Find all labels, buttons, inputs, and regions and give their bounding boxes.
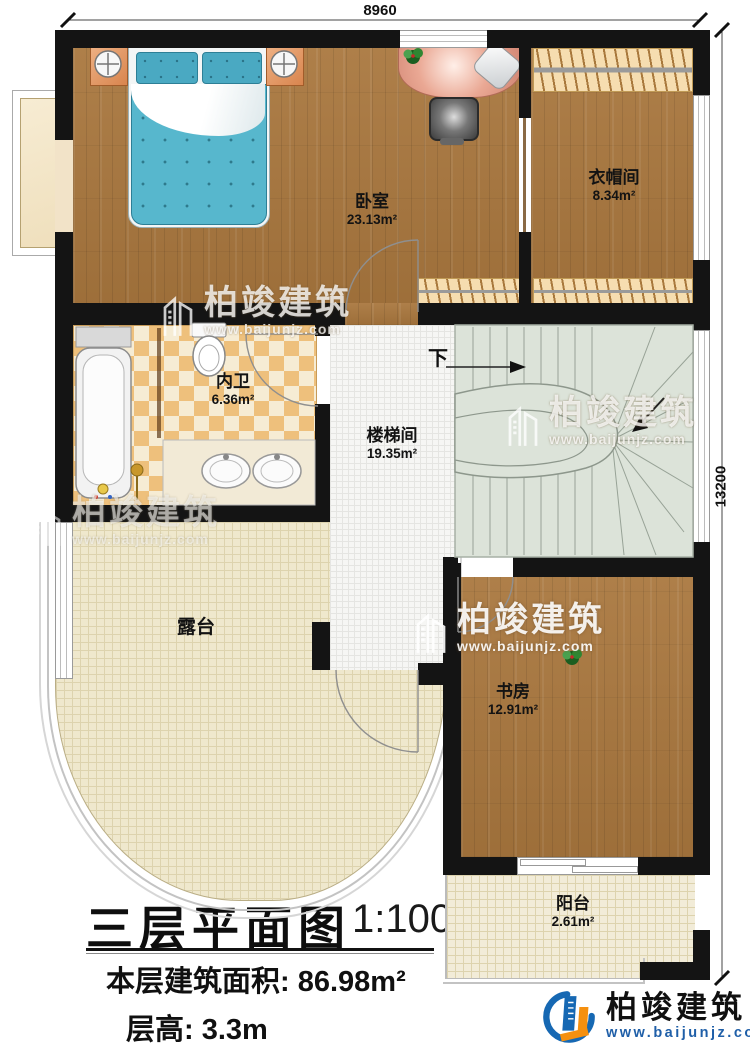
room-name: 衣帽间 [589,168,640,188]
floor-area-value: 86.98m² [298,966,406,998]
label-bedroom: 卧室 23.13m² [347,192,397,228]
wall-bath-right-bottom [315,404,330,505]
bedroom-computer-stand [440,138,464,145]
room-name: 卧室 [347,192,397,212]
wall-study-bottom-left [461,857,517,875]
wall-cloak-stub-bottom [519,232,531,303]
wall-right-stair-bottom [693,542,710,577]
brand-name: 柏竣建筑 [606,992,750,1024]
wall-bath-bottom [55,505,330,522]
floor-area-label: 本层建筑面积: [106,966,290,998]
wall-bath-right-top [315,325,330,336]
dimension-right: 13200 [713,452,730,522]
label-terrace: 露台 [177,618,215,638]
balcony-railing [443,958,645,984]
plan-scale: 1:100 [352,897,452,942]
cloakroom-wardrobe-top [533,48,693,92]
label-study: 书房 12.91m² [488,682,538,718]
cloakroom-right-window [693,95,710,262]
room-area: 8.34m² [589,188,640,204]
stair-down-label: 下 [428,342,448,371]
bed-pillow-right [202,52,262,84]
wall-study-bottom-right [638,857,710,875]
watermark-2: 柏竣建筑www.baijunjz.com [503,396,697,448]
label-balcony: 阳台 2.61m² [552,894,595,930]
room-name: 楼梯间 [367,426,418,446]
wall-left-top [55,48,73,140]
sliding-window-panel-2 [572,866,638,873]
room-area: 23.13m² [347,212,397,228]
wall-cloak-stub-top [519,48,531,118]
title-underline-shadow [86,953,434,954]
room-area: 2.61m² [552,914,595,930]
room-name: 书房 [488,682,538,702]
wall-mid-horizontal-right [418,303,710,325]
bathroom-floor [73,325,317,507]
wall-top-left [55,30,400,48]
room-name: 阳台 [552,894,595,914]
bay-window-floor-inner [55,140,73,232]
label-cloakroom: 衣帽间 8.34m² [589,168,640,204]
watermark-building-icon [503,396,543,448]
wall-study-left [443,563,461,875]
nightstand-right [266,44,304,86]
bed-pillow-left [136,52,198,84]
wall-stair-bottom-right [513,557,693,577]
room-area: 6.36m² [212,392,255,408]
bedroom-closet [418,278,520,305]
bedroom-computer [429,97,479,141]
floor-height-line: 层高: 3.3m [126,1006,268,1048]
wall-study-right [693,577,710,857]
brand-url: www.baijunjz.com [606,1024,750,1042]
dimension-top: 8960 [340,2,420,19]
wall-top-right [487,30,710,48]
cloakroom-wardrobe-bottom [533,278,693,305]
floor-height-label: 层高: [126,1014,194,1046]
bedroom-top-window [399,30,489,48]
terrace-left-railing [55,522,73,679]
stairwell-right-window [693,330,710,544]
label-stairwell: 楼梯间 19.35m² [367,426,418,462]
brand-logo: 柏竣建筑 www.baijunjz.com [540,986,750,1048]
floor-area-line: 本层建筑面积: 86.98m² [106,958,406,1000]
room-area: 12.91m² [488,702,538,718]
wall-mid-horizontal-left [55,303,345,325]
cloakroom-partition-line [523,118,526,232]
bedroom-door-threshold [345,303,418,325]
sliding-window-panel-1 [520,859,586,866]
room-name: 露台 [177,618,215,638]
floor-height-value: 3.3m [202,1014,268,1046]
wall-hall-stub-left [312,622,330,670]
label-bathroom: 内卫 6.36m² [212,372,255,408]
room-area: 19.35m² [367,446,418,462]
down-arrow [446,361,526,373]
wall-balcony-bottom-right [640,962,710,980]
wall-hall-stub-right [418,663,443,685]
spiral-stair [455,325,693,557]
nightstand-left [90,44,128,86]
wall-right-corner [693,48,710,95]
brand-logo-icon [540,986,598,1048]
room-name: 内卫 [212,372,255,392]
wall-left-bath [55,325,73,505]
floor-plan-page: 8960 13200 卧室 23.13m² 衣帽间 8.34m² 内卫 6.36… [0,0,750,1056]
title-underline [86,948,434,951]
stair-hall-floor [330,325,455,670]
